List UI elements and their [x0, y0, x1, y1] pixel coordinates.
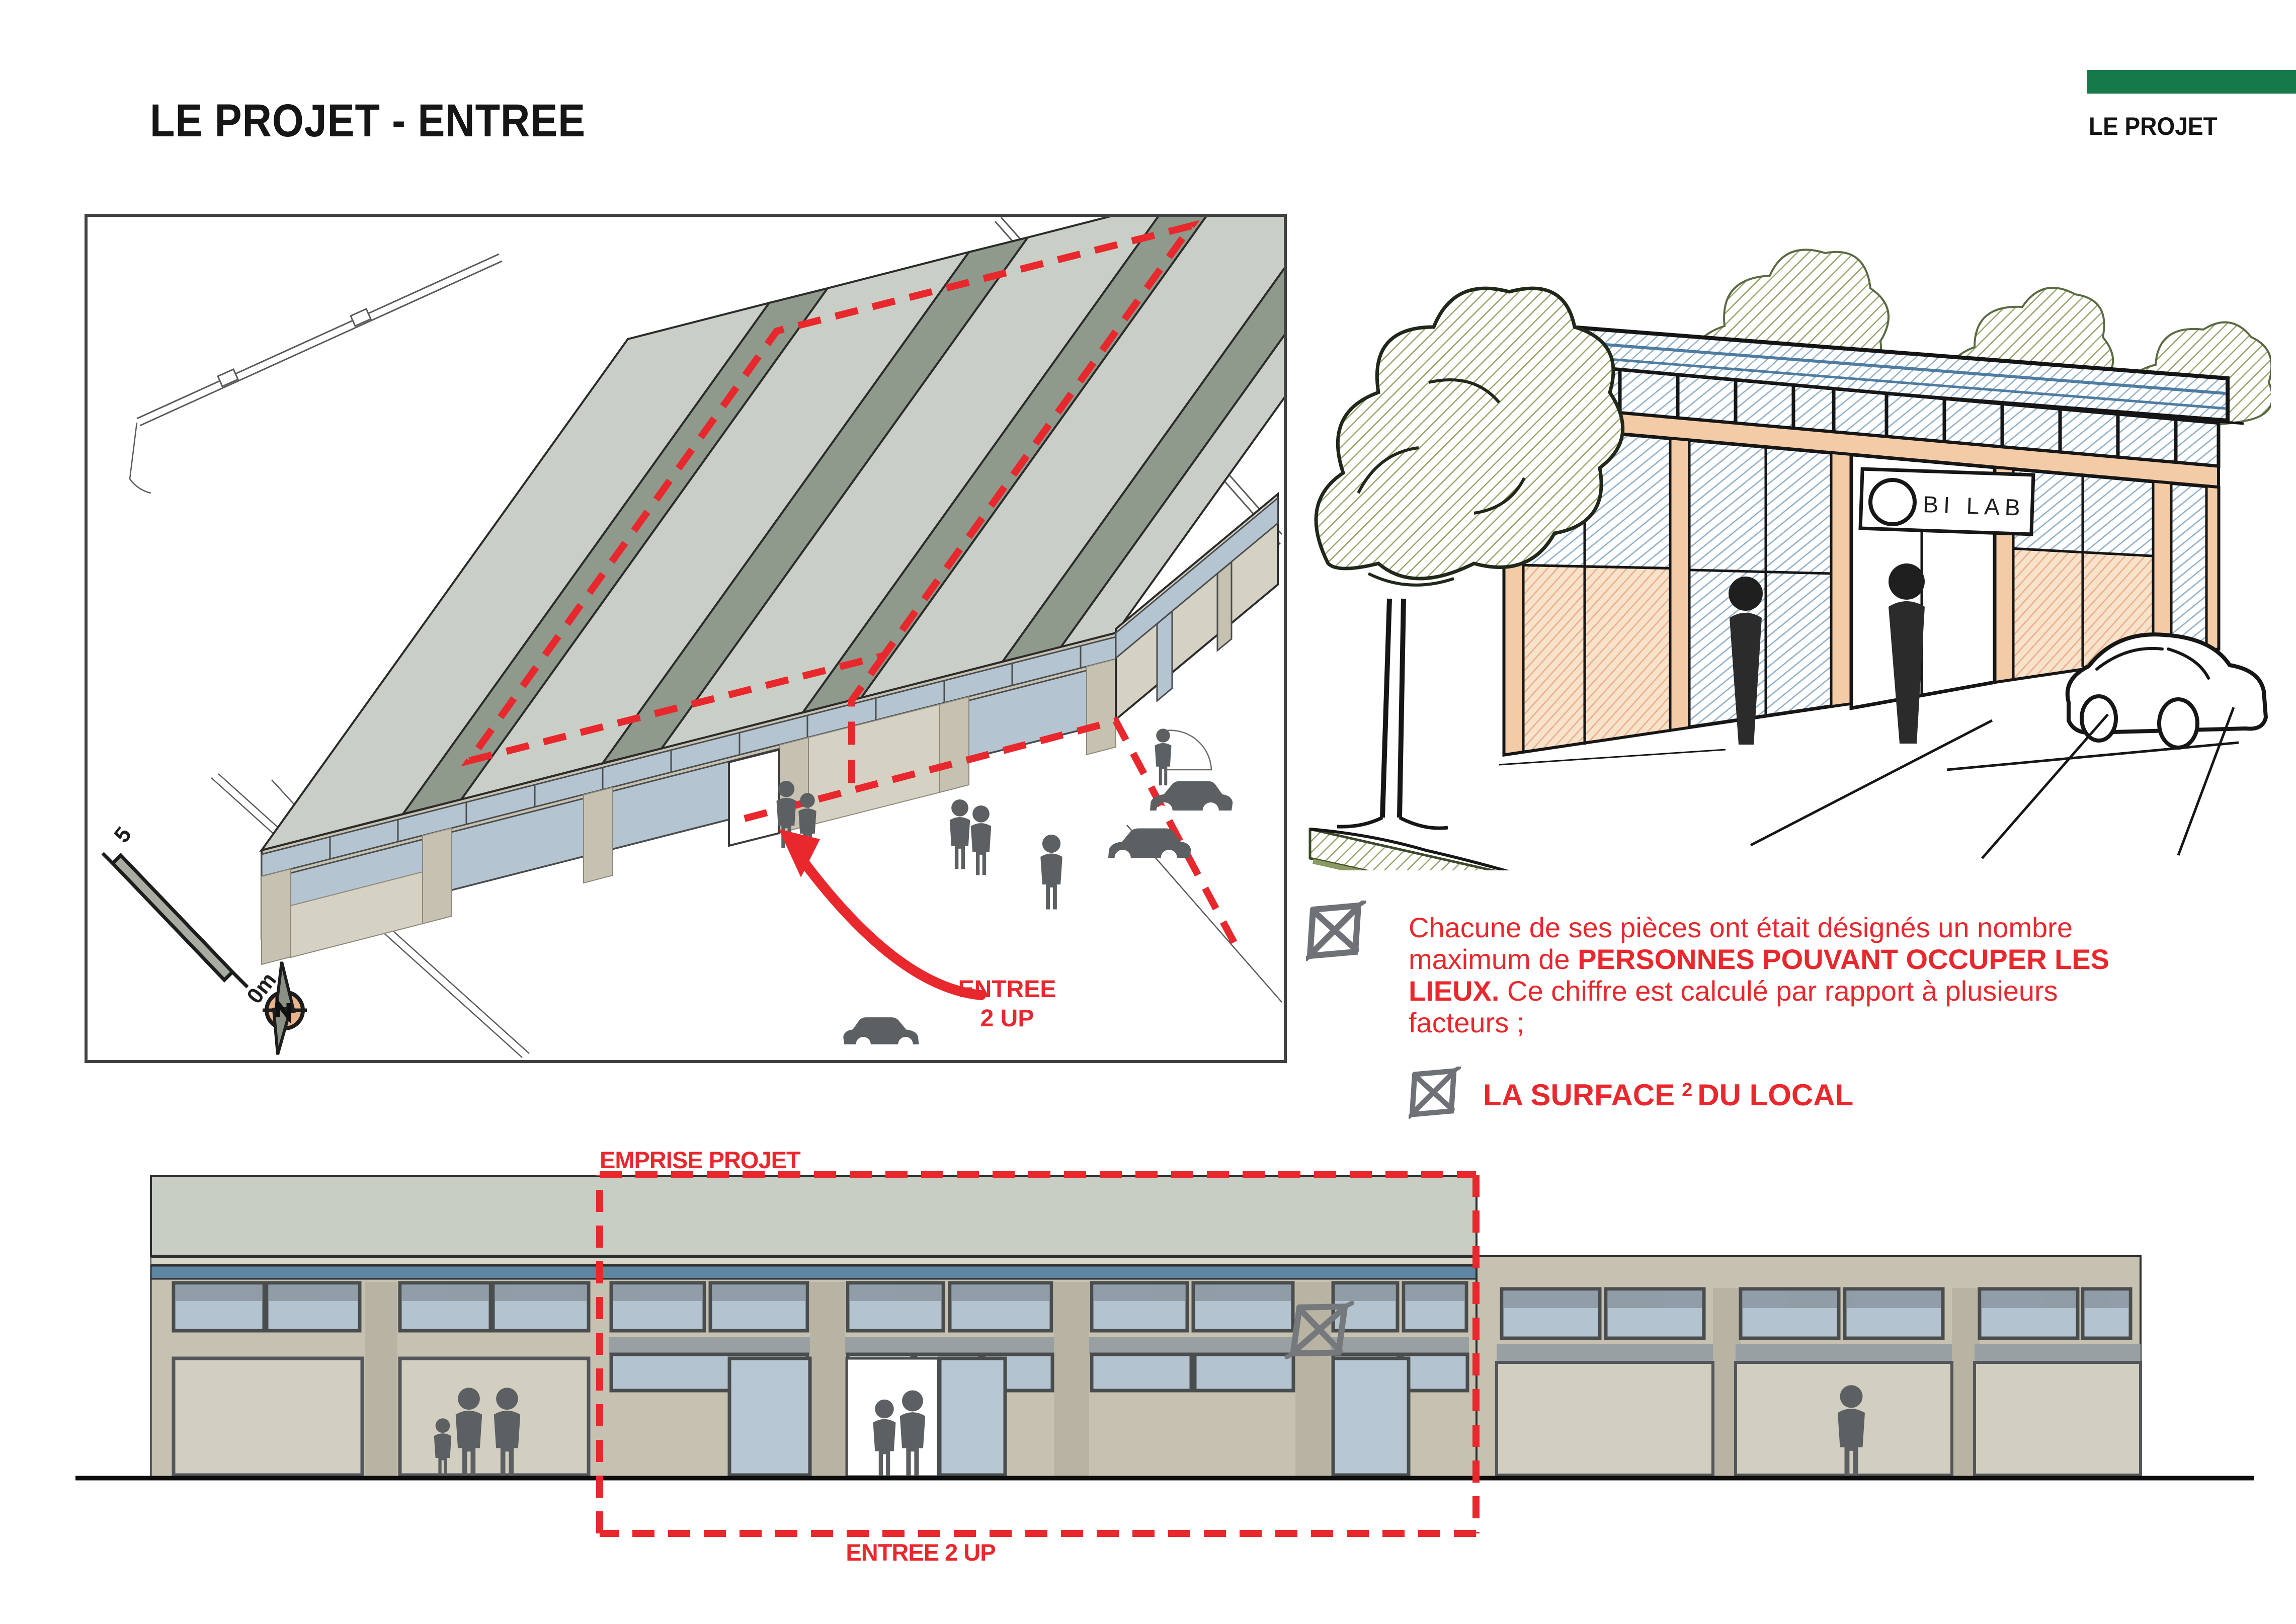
elevation-right-clerestory	[1497, 1289, 2141, 1362]
surface-note-sup: 2	[1682, 1080, 1692, 1101]
door-swing-arc	[1166, 730, 1211, 770]
axon-entrance-door	[729, 750, 779, 846]
checkbox-sketch-icon	[1306, 901, 1366, 961]
axon-entree-label-line2: 2 UP	[980, 1005, 1034, 1032]
surface-note-post: DU LOCAL	[1697, 1078, 1853, 1112]
checkbox-sketch-icon	[1287, 1299, 1352, 1361]
emprise-label: EMPRISE PROJET	[600, 1147, 801, 1173]
elevation-drawing: EMPRISE PROJET ENTREE 2 UP	[50, 1137, 2279, 1590]
scale-start-label: 5	[109, 823, 136, 847]
corner-section-label: LE PROJET	[2089, 112, 2279, 141]
sketch-sign: BI LAB	[1860, 469, 2033, 534]
occupancy-note: Chacune de ses pièces ont était désignés…	[1409, 912, 2128, 1038]
sketch-hedge	[1310, 829, 1541, 870]
corner-green-bar	[2087, 70, 2296, 94]
elevation-entree-label: ENTREE 2 UP	[846, 1539, 995, 1566]
entrance-arrow-icon	[805, 863, 981, 995]
axonometric-drawing: ENTREE 2 UP 5 0m	[88, 217, 1284, 1060]
note-text-2: Ce chiffre est calculé par rapport à plu…	[1409, 975, 2058, 1038]
page-title: LE PROJET - ENTREE	[150, 95, 586, 147]
hand-sketch-view: BI LAB	[1308, 216, 2271, 870]
checkbox-sketch-icon	[1409, 1067, 1461, 1119]
surface-note: LA SURFACE2DU LOCAL	[1483, 1078, 1853, 1112]
sign-text: BI LAB	[1923, 491, 2026, 521]
axon-cars	[843, 781, 1233, 1049]
scale-bar: 5 0m	[103, 823, 281, 1008]
elevation-blue-band	[151, 1266, 1477, 1279]
axon-entree-label-line1: ENTREE	[958, 976, 1056, 1003]
surface-note-pre: LA SURFACE	[1483, 1078, 1675, 1112]
